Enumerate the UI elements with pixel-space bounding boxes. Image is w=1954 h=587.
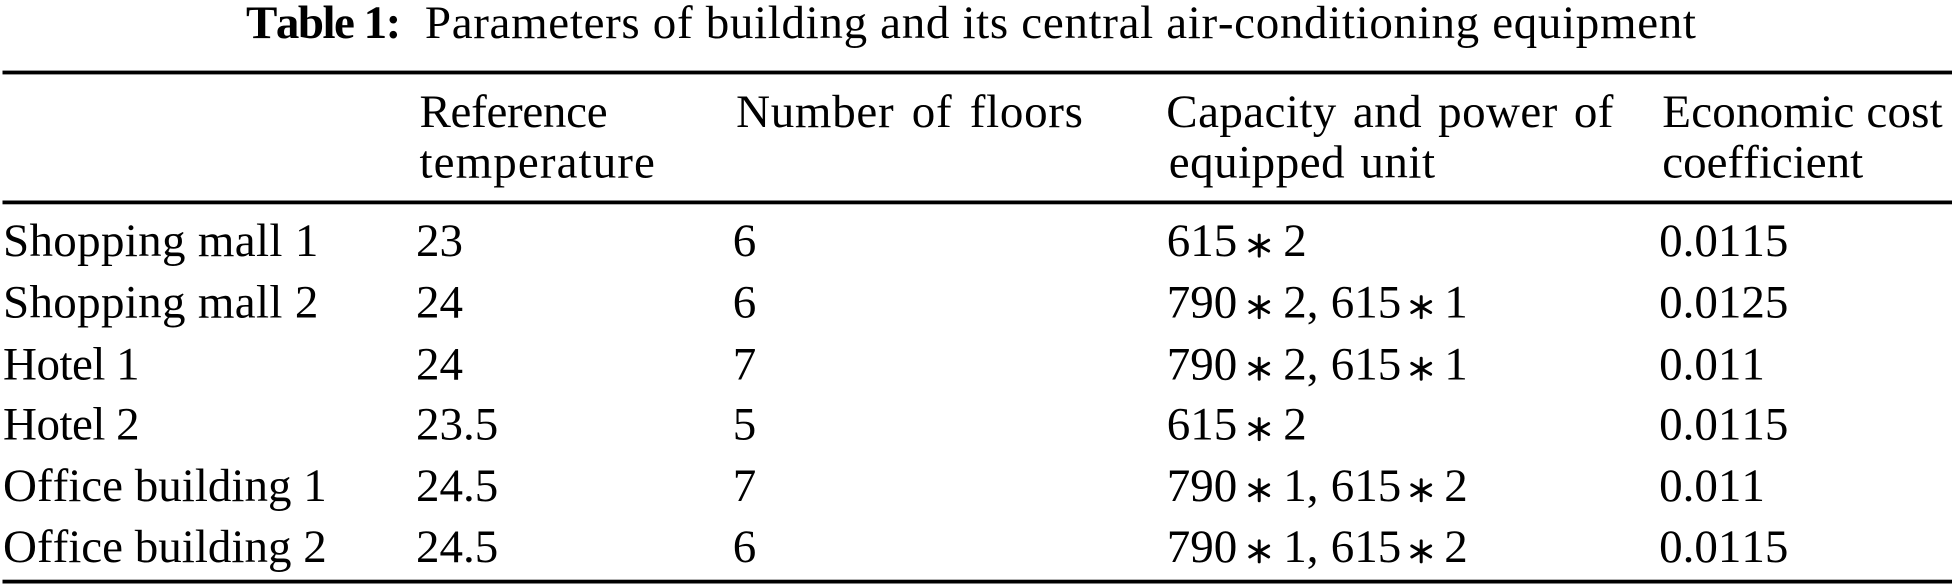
svg-text:Number of floors: Number of floors bbox=[736, 86, 1084, 138]
svg-text:Table 1:: Table 1: bbox=[246, 0, 400, 49]
svg-text:615: 615 bbox=[1167, 399, 1238, 451]
svg-text:Shopping mall 1: Shopping mall 1 bbox=[3, 215, 319, 267]
svg-text:24.5: 24.5 bbox=[416, 460, 498, 512]
svg-text:0.0115: 0.0115 bbox=[1659, 215, 1788, 267]
svg-text:2,: 2, bbox=[1283, 277, 1318, 329]
svg-text:5: 5 bbox=[733, 399, 757, 451]
svg-text:Parameters of building and its: Parameters of building and its central a… bbox=[425, 0, 1697, 49]
svg-text:7: 7 bbox=[733, 338, 757, 390]
svg-text:2: 2 bbox=[1283, 215, 1307, 267]
svg-text:Capacity and power of: Capacity and power of bbox=[1166, 86, 1614, 138]
svg-text:0.011: 0.011 bbox=[1659, 460, 1765, 512]
svg-text:equipped unit: equipped unit bbox=[1169, 137, 1436, 189]
svg-text:2: 2 bbox=[1283, 399, 1307, 451]
svg-text:0.0125: 0.0125 bbox=[1659, 277, 1788, 329]
svg-text:790: 790 bbox=[1167, 460, 1238, 512]
svg-text:2,: 2, bbox=[1283, 338, 1318, 390]
svg-text:0.0115: 0.0115 bbox=[1659, 521, 1788, 573]
svg-text:23.5: 23.5 bbox=[416, 399, 498, 451]
svg-text:Economic cost: Economic cost bbox=[1662, 86, 1943, 138]
svg-text:1: 1 bbox=[1444, 338, 1468, 390]
svg-text:1,: 1, bbox=[1283, 521, 1318, 573]
svg-text:2: 2 bbox=[1444, 521, 1468, 573]
svg-text:Hotel 2: Hotel 2 bbox=[3, 399, 139, 451]
svg-text:23: 23 bbox=[416, 215, 463, 267]
svg-text:6: 6 bbox=[733, 215, 757, 267]
svg-text:Reference: Reference bbox=[420, 86, 608, 138]
svg-text:790: 790 bbox=[1167, 338, 1238, 390]
svg-text:Office building 2: Office building 2 bbox=[3, 521, 327, 573]
svg-text:0.0115: 0.0115 bbox=[1659, 399, 1788, 451]
svg-text:Shopping mall 2: Shopping mall 2 bbox=[3, 277, 319, 329]
svg-text:1: 1 bbox=[1444, 277, 1468, 329]
svg-text:coefficient: coefficient bbox=[1662, 137, 1863, 189]
svg-text:615: 615 bbox=[1331, 338, 1402, 390]
svg-text:7: 7 bbox=[733, 460, 757, 512]
svg-text:24: 24 bbox=[416, 277, 463, 329]
svg-text:6: 6 bbox=[733, 277, 757, 329]
svg-text:6: 6 bbox=[733, 521, 757, 573]
svg-text:0.011: 0.011 bbox=[1659, 338, 1765, 390]
svg-text:1,: 1, bbox=[1283, 460, 1318, 512]
svg-text:790: 790 bbox=[1167, 521, 1238, 573]
svg-text:Hotel 1: Hotel 1 bbox=[3, 338, 139, 390]
svg-text:2: 2 bbox=[1444, 460, 1468, 512]
svg-text:24: 24 bbox=[416, 338, 463, 390]
svg-text:24.5: 24.5 bbox=[416, 521, 498, 573]
svg-text:615: 615 bbox=[1331, 460, 1402, 512]
svg-text:615: 615 bbox=[1331, 277, 1402, 329]
svg-text:615: 615 bbox=[1167, 215, 1238, 267]
svg-text:temperature: temperature bbox=[420, 137, 657, 189]
svg-text:Office building 1: Office building 1 bbox=[3, 460, 327, 512]
svg-text:790: 790 bbox=[1167, 277, 1238, 329]
svg-text:615: 615 bbox=[1331, 521, 1402, 573]
